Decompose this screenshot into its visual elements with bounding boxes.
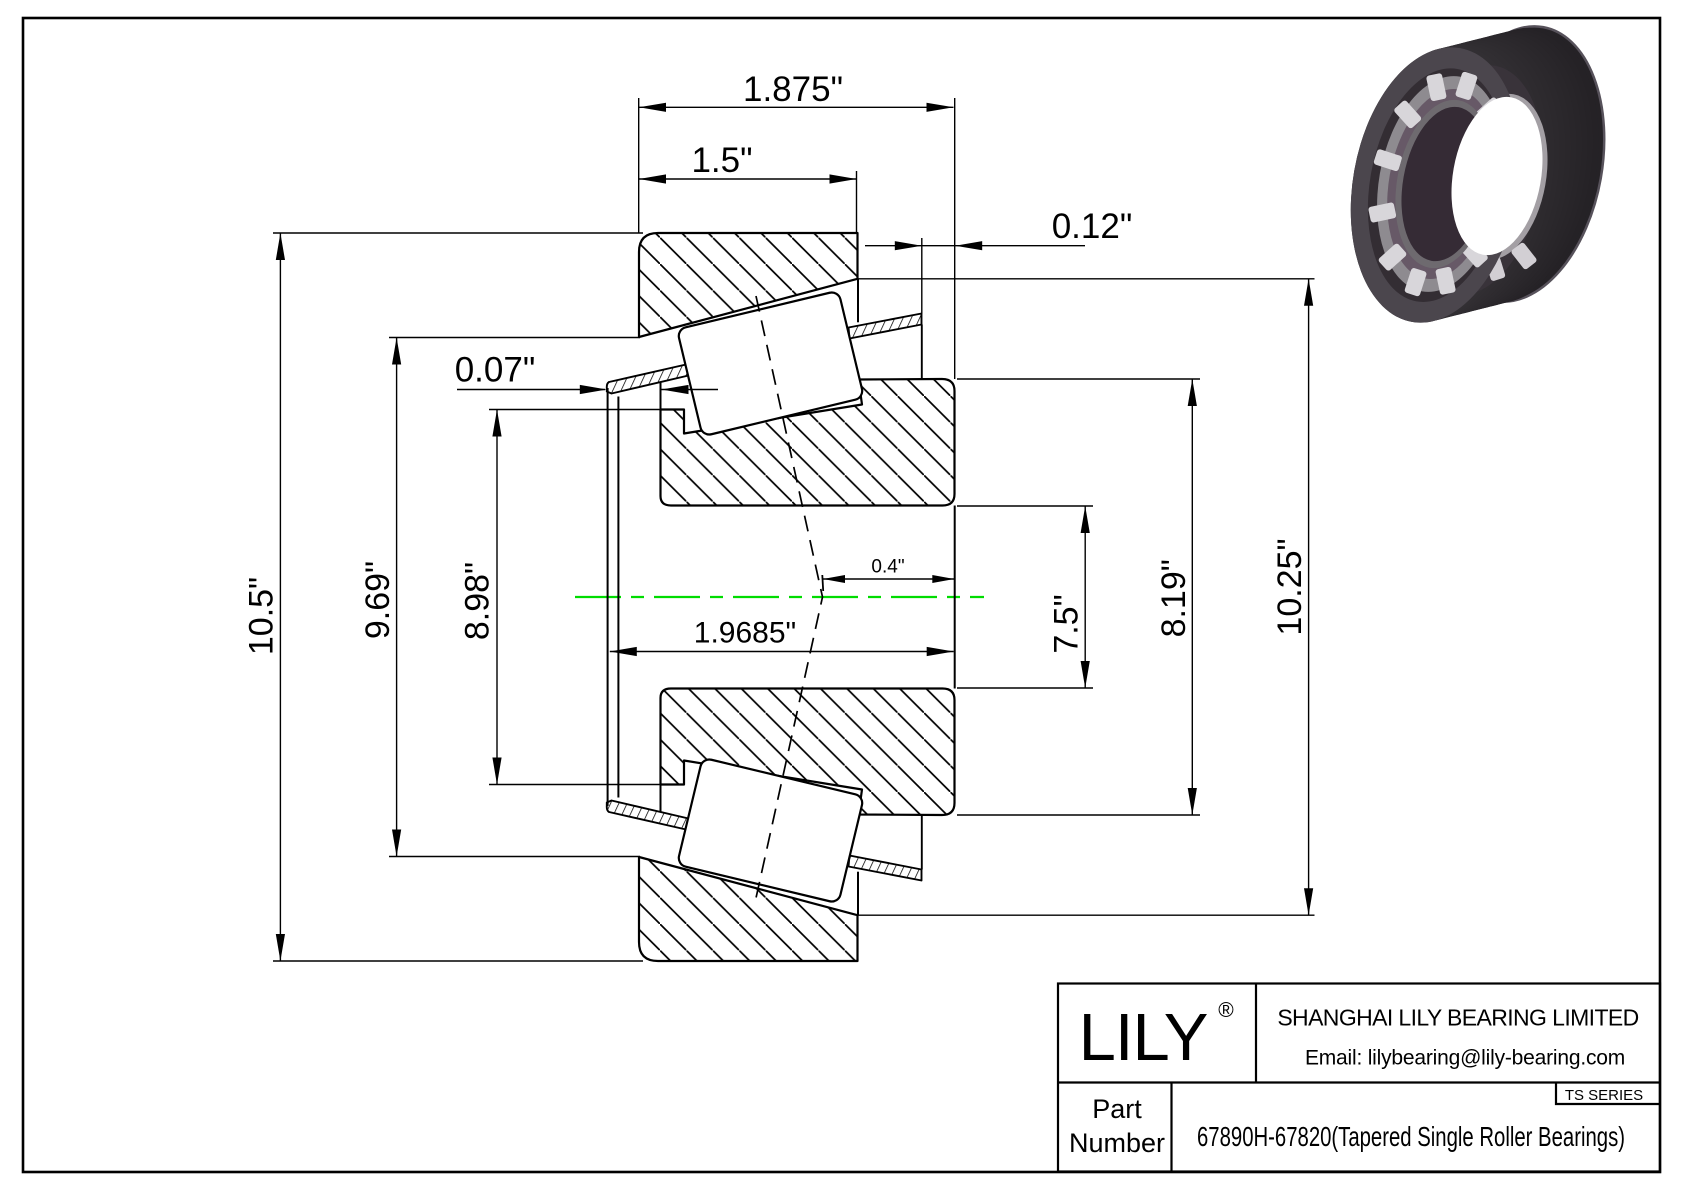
svg-text:®: ® bbox=[1218, 999, 1234, 1022]
svg-text:8.98": 8.98" bbox=[459, 562, 497, 640]
svg-text:Number: Number bbox=[1069, 1128, 1165, 1158]
svg-text:67890H-67820(Tapered Single Ro: 67890H-67820(Tapered Single Roller Beari… bbox=[1197, 1121, 1625, 1152]
svg-text:8.19": 8.19" bbox=[1155, 559, 1193, 637]
svg-text:10.25": 10.25" bbox=[1271, 538, 1309, 635]
svg-text:0.07": 0.07" bbox=[455, 351, 536, 390]
svg-text:TS SERIES: TS SERIES bbox=[1565, 1087, 1643, 1104]
svg-text:Email: lilybearing@lily-bearin: Email: lilybearing@lily-bearing.com bbox=[1305, 1047, 1625, 1070]
svg-text:LILY: LILY bbox=[1079, 1000, 1208, 1075]
svg-text:7.5": 7.5" bbox=[1047, 594, 1085, 653]
svg-text:Part: Part bbox=[1092, 1094, 1142, 1124]
svg-text:10.5": 10.5" bbox=[243, 577, 281, 655]
svg-text:0.4": 0.4" bbox=[871, 557, 904, 578]
svg-text:1.9685": 1.9685" bbox=[694, 617, 796, 650]
svg-text:SHANGHAI LILY BEARING LIMITED: SHANGHAI LILY BEARING LIMITED bbox=[1277, 1005, 1638, 1031]
svg-text:1.5": 1.5" bbox=[691, 141, 752, 180]
svg-text:1.875": 1.875" bbox=[743, 70, 843, 109]
svg-text:9.69": 9.69" bbox=[359, 561, 397, 639]
svg-text:0.12": 0.12" bbox=[1052, 207, 1133, 246]
